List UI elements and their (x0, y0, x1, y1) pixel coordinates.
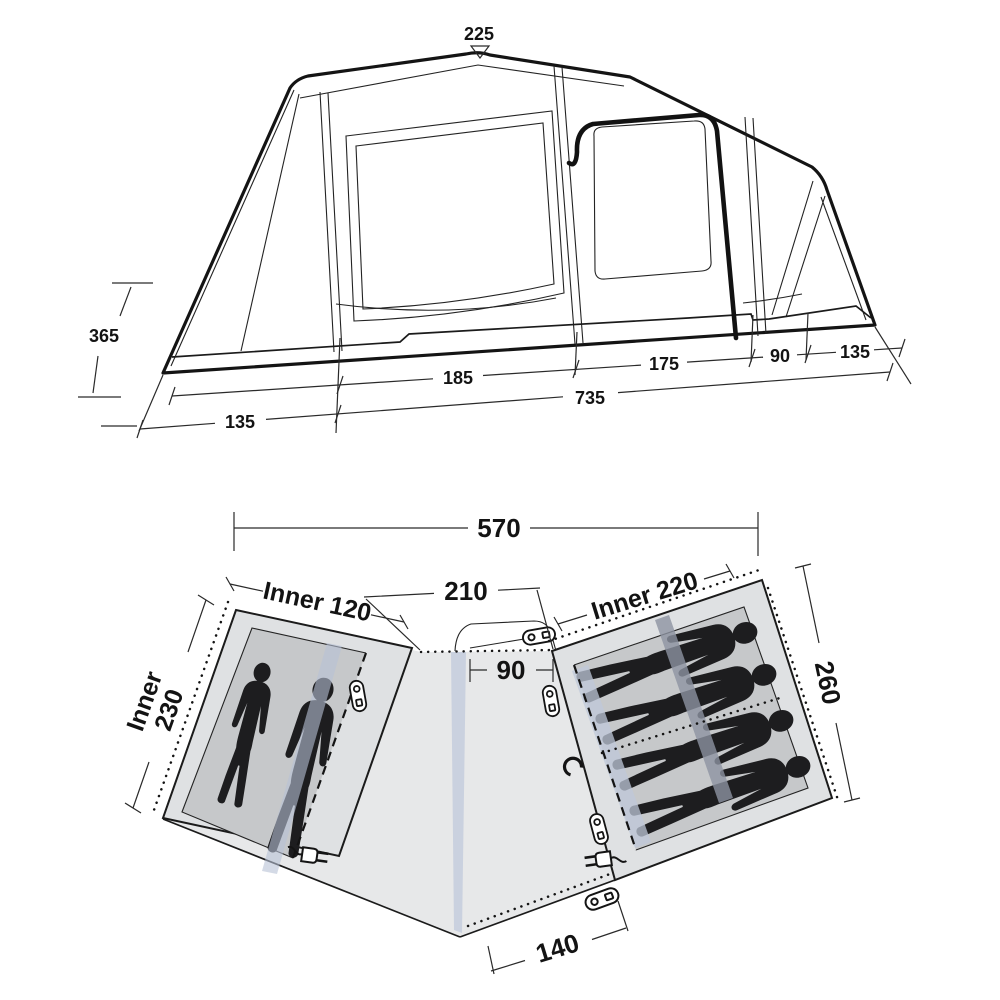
dim-label-735: 735 (575, 388, 605, 408)
dim-label-140: 140 (532, 927, 582, 968)
side-window-left (346, 111, 564, 321)
tent-dimension-diagram: 225 365 (0, 0, 1000, 1000)
dim-label-135-base: 135 (225, 412, 255, 432)
dim-label-210: 210 (444, 576, 487, 606)
side-elevation-view: 225 365 (78, 24, 911, 438)
dim-label-225: 225 (464, 24, 494, 44)
dim-label-365: 365 (89, 326, 119, 346)
tent-seam-lines (171, 65, 871, 366)
dim-label-inner-230: Inner 230 (121, 668, 192, 744)
dim-label-135-right: 135 (840, 342, 870, 362)
diagram-svg: 225 365 (0, 0, 1000, 1000)
dim-label-90: 90 (770, 346, 790, 366)
dim-label-185: 185 (443, 368, 473, 388)
dim-label-175: 175 (649, 354, 679, 374)
dim-label-260: 260 (809, 658, 847, 707)
tent-outline (163, 53, 875, 373)
dim-side-height: 365 (78, 283, 153, 397)
dim-label-570: 570 (477, 513, 520, 543)
dim-label-90-plan: 90 (497, 655, 526, 685)
side-door (569, 115, 736, 338)
floor-plan-view: 570 210 90 140 Inner 120 Inner 230 (121, 512, 860, 974)
